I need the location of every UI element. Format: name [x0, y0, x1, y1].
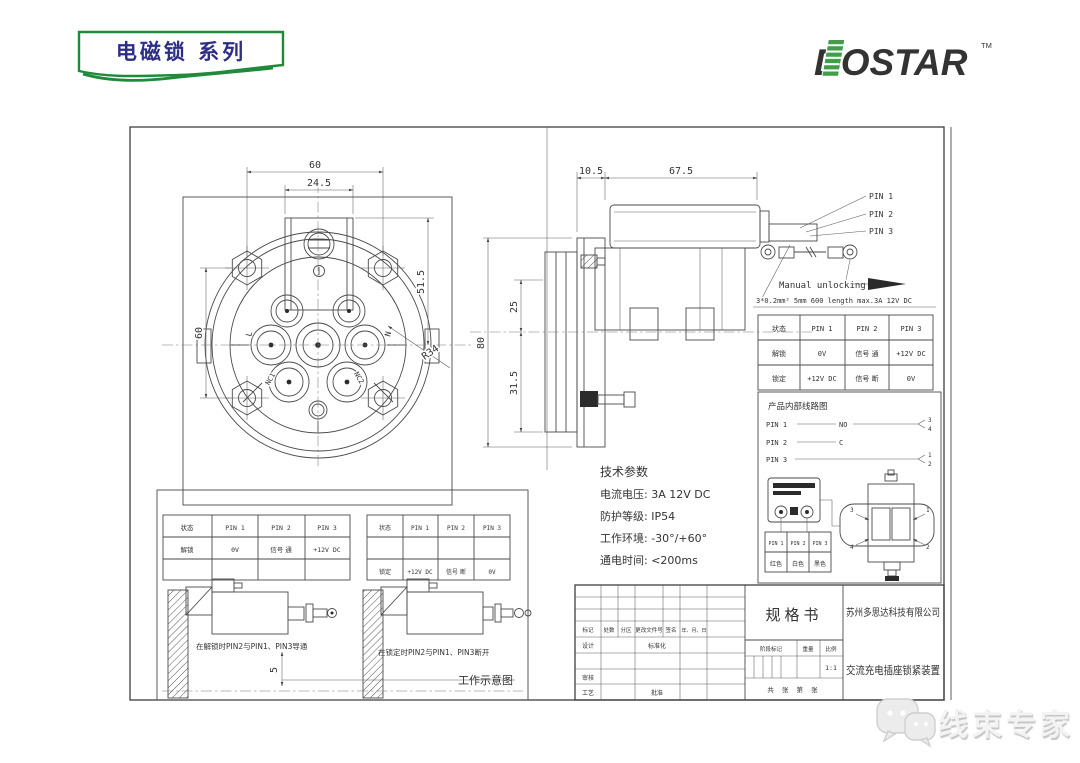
- title-block: 标记 处数 分区 更改文件号 签名 年、月、日 设计 标准化 审核 工艺 批准 …: [575, 585, 944, 700]
- wt1-c2: 信号 通: [270, 545, 292, 554]
- manual-unlock-cable: Manual unlocking 3*0.2mm² 5mm 600 length…: [753, 245, 936, 307]
- side-view: 10.5 67.5 80 25 31.5 PIN 1 PIN 2 PIN 3: [470, 166, 936, 447]
- caption-unlock: 在解锁时PIN2与PIN1、PIN3导通: [196, 641, 308, 651]
- tech-line-4: 通电时间: <200ms: [600, 554, 698, 567]
- pin2-col-header: PIN 2: [856, 325, 877, 333]
- lock-pin2: 信号 断: [855, 374, 878, 383]
- dim-tab-width: 24.5: [307, 178, 331, 189]
- wt1-h1: PIN 1: [225, 524, 245, 532]
- spec-title: 规格书: [765, 606, 822, 624]
- tb-craft: 工艺: [582, 689, 594, 697]
- circuit-title: 产品内部线路图: [768, 401, 828, 412]
- relay-block: [768, 478, 820, 522]
- technical-drawing: L N NC1 NC2 60 24.5 51.5 60: [0, 0, 1080, 763]
- tb-standardize: 标准化: [648, 642, 666, 650]
- wt1-c1: 0V: [231, 546, 239, 554]
- dim-total-height: 80: [476, 337, 487, 349]
- sol-t3: 3: [850, 507, 854, 514]
- caption-lock: 在锁定时PIN2与PIN1、PIN3断开: [378, 647, 490, 657]
- scale-grid: [745, 640, 843, 678]
- tb-mark: 标记: [582, 626, 594, 634]
- arrow-right-icon: [868, 278, 906, 290]
- side-view-dimensions: 10.5 67.5 80 25 31.5: [476, 166, 757, 447]
- pin-label-n: N: [383, 330, 393, 337]
- wire-pin2: PIN 2: [790, 541, 805, 547]
- lock-pin1: +12V DC: [807, 375, 837, 383]
- pin3-col-header: PIN 3: [900, 325, 921, 333]
- tb-approve: 批准: [651, 689, 663, 697]
- sheet-frame: [130, 127, 951, 700]
- tb-count: 处数: [603, 626, 615, 634]
- tb-zone: 分区: [620, 626, 632, 634]
- wt2-h0: 状态: [379, 524, 391, 532]
- solenoid-symbol: [840, 470, 934, 581]
- dim-upper: 25: [509, 301, 520, 313]
- tb-scale-val: 1:1: [825, 664, 837, 672]
- lead-wires: PIN 1 PIN 2 PIN 3: [800, 192, 893, 236]
- unlock-pin1: 0V: [818, 350, 827, 358]
- dim-lower: 31.5: [509, 371, 520, 395]
- tb-doc-no: 更改文件号: [635, 626, 663, 634]
- tb-stage: 阶段标记: [760, 645, 783, 653]
- circuit-c: C: [839, 439, 843, 447]
- tb-weight: 重量: [802, 645, 814, 653]
- wt1-h2: PIN 2: [271, 524, 291, 532]
- wt2-c3: 0V: [488, 569, 496, 576]
- pin2-callout: PIN 2: [869, 210, 893, 219]
- tb-check: 审核: [582, 674, 594, 682]
- wire-spec: 3*0.2mm² 5mm 600 length max.3A 12V DC: [756, 297, 912, 305]
- unlock-pin2: 信号 通: [855, 349, 878, 358]
- status-table: 状态 PIN 1 PIN 2 PIN 3 解锁 0V 信号 通 +12V DC …: [758, 315, 933, 390]
- wire-pin3: PIN 3: [812, 541, 827, 547]
- tb-sheet: 共 张 第 张: [767, 685, 820, 694]
- watermark: 线束专家: [874, 690, 1080, 754]
- pin-label-nc2: NC2: [352, 370, 365, 385]
- work-label: 工作示意图: [458, 673, 513, 687]
- dim-body-len: 67.5: [669, 166, 693, 177]
- wire-pin1: PIN 1: [768, 541, 783, 547]
- circuit-t2: 2: [928, 461, 932, 468]
- tech-line-2: 防护等级: IP54: [600, 509, 675, 523]
- tech-line-1: 电流电压: 3A 12V DC: [600, 487, 711, 501]
- circuit-pin3: PIN 3: [766, 456, 787, 464]
- wt2-h3: PIN 3: [483, 525, 501, 532]
- manual-unlocking-label: Manual unlocking: [779, 281, 866, 291]
- wire-color-2: 白色: [792, 560, 804, 568]
- pin1-callout: PIN 1: [869, 192, 893, 201]
- tech-title: 技术参数: [600, 464, 648, 479]
- slide-page: 电磁锁 系列 DOSTAR TM: [0, 0, 1080, 763]
- circuit-t3: 3: [928, 417, 932, 424]
- product-name: 交流充电插座锁紧装置: [846, 663, 940, 677]
- dim-left-height: 60: [194, 327, 205, 339]
- wt2-c0: 锁定: [379, 568, 391, 576]
- company-name: 苏州多思达科技有限公司: [846, 606, 940, 619]
- wt1-h3: PIN 3: [317, 524, 337, 532]
- dim-gap: 5: [269, 667, 280, 673]
- wt2-h1: PIN 1: [411, 525, 429, 532]
- work-table-lock: 状态 PIN 1 PIN 2 PIN 3 锁定 +12V DC 信号 断 0V: [367, 515, 510, 580]
- lock-pin3: 0V: [907, 375, 916, 383]
- dim-right-height: 51.5: [416, 270, 427, 294]
- tb-design: 设计: [582, 642, 594, 650]
- circuit-pin1: PIN 1: [766, 421, 787, 429]
- status-col-header: 状态: [772, 324, 786, 333]
- wire-color-3: 黑色: [814, 560, 826, 568]
- wt1-c3: +12V DC: [313, 546, 340, 554]
- circuit-pin2: PIN 2: [766, 439, 787, 447]
- unlock-state: 解锁: [772, 349, 786, 358]
- front-view-dimensions: 60 24.5 51.5 60 R34: [194, 160, 450, 398]
- circuit-t4: 4: [928, 426, 932, 433]
- circuit-no: NO: [839, 421, 847, 429]
- front-view: L N NC1 NC2 60 24.5 51.5 60: [162, 160, 474, 505]
- watermark-text: 线束专家: [938, 700, 1074, 744]
- dim-top-width: 60: [309, 160, 321, 171]
- wechat-icon: [874, 695, 938, 749]
- tb-date: 年、月、日: [681, 627, 706, 634]
- wire-color-table: PIN 1 PIN 2 PIN 3 红色 白色 黑色: [765, 532, 831, 572]
- tb-sign: 签名: [665, 626, 676, 634]
- tech-line-3: 工作环境: -30°/+60°: [600, 531, 707, 545]
- tech-params: 技术参数 电流电压: 3A 12V DC 防护等级: IP54 工作环境: -3…: [600, 464, 711, 567]
- wt1-h0: 状态: [181, 523, 195, 532]
- work-table-unlock: 状态 PIN 1 PIN 2 PIN 3 解锁 0V 信号 通 +12V DC: [163, 515, 350, 580]
- work-diagram: 状态 PIN 1 PIN 2 PIN 3 解锁 0V 信号 通 +12V DC …: [157, 490, 531, 700]
- circuit-diagram: 产品内部线路图 PIN 1 NO 3 4 PIN 2 C PIN 3 1 2: [758, 392, 941, 583]
- sol-t2: 2: [926, 544, 930, 551]
- sol-t1: 1: [926, 507, 930, 514]
- wt2-c1: +12V DC: [407, 569, 433, 576]
- wt2-h2: PIN 2: [447, 525, 465, 532]
- tb-scale: 比例: [825, 645, 837, 653]
- lock-state: 锁定: [772, 374, 786, 383]
- pin3-callout: PIN 3: [869, 227, 893, 236]
- wire-color-1: 红色: [770, 560, 782, 568]
- dim-flange: 10.5: [579, 166, 603, 177]
- wt1-c0: 解锁: [181, 545, 195, 554]
- pin1-col-header: PIN 1: [811, 325, 832, 333]
- sol-t4: 4: [850, 544, 854, 551]
- pin-label-l: L: [244, 330, 254, 337]
- unlock-pin3: +12V DC: [896, 350, 926, 358]
- wt2-c2: 信号 断: [446, 568, 466, 576]
- circuit-t1: 1: [928, 452, 932, 459]
